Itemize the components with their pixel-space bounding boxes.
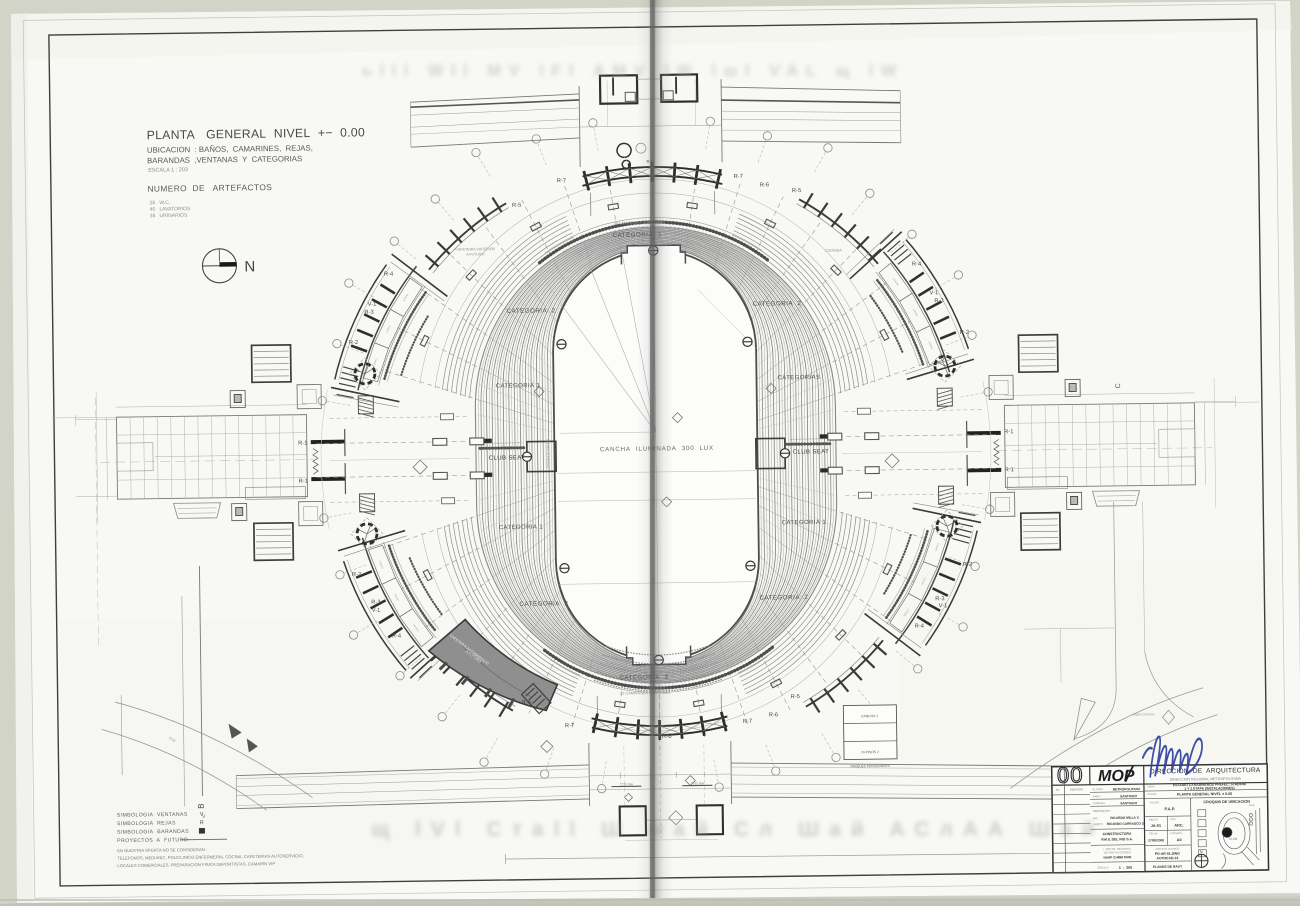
svg-text:CATEGORIA 2: CATEGORIA 2 xyxy=(753,300,802,308)
svg-text:2733 INA: 2733 INA xyxy=(620,782,634,786)
svg-text:PLANTA GENERAL NIVEL ± 0.00: PLANTA GENERAL NIVEL ± 0.00 xyxy=(1177,792,1232,797)
svg-text:CATEGORIA 1: CATEGORIA 1 xyxy=(782,520,827,527)
svg-text:MOP: MOP xyxy=(1098,768,1135,785)
svg-text:CLUB SEAT: CLUB SEAT xyxy=(793,449,830,455)
svg-text:CONSTRUCTORA: CONSTRUCTORA xyxy=(1103,832,1132,836)
svg-text:FORMATO: FORMATO xyxy=(1170,832,1182,835)
svg-text:R-5: R-5 xyxy=(792,188,801,194)
svg-text:DIRECCION DE ARQUITECTURA: DIRECCION DE ARQUITECTURA xyxy=(1150,767,1261,775)
svg-text:ARCHIVO TECNICO: ARCHIVO TECNICO xyxy=(1155,847,1179,851)
svg-text:CATEGORIA 2: CATEGORIA 2 xyxy=(519,600,568,608)
svg-text:CATEGORIA 1: CATEGORIA 1 xyxy=(499,525,544,532)
svg-text:OBRA: OBRA xyxy=(1147,784,1155,788)
svg-text:R-6: R-6 xyxy=(769,712,778,718)
svg-text:SIMBOLOGIA BARANDAS: SIMBOLOGIA BARANDAS xyxy=(117,829,189,836)
svg-text:AREA: AREA xyxy=(1093,794,1101,798)
svg-text:R-3: R-3 xyxy=(371,600,380,606)
svg-text:N: N xyxy=(244,258,255,275)
svg-text:CANCHA 1: CANCHA 1 xyxy=(861,714,878,718)
svg-text:R-7: R-7 xyxy=(734,174,743,180)
svg-text:26 W.C.: 26 W.C. xyxy=(150,200,171,206)
svg-text:COMUNA: COMUNA xyxy=(1093,801,1106,805)
svg-text:CATEGORIA 2: CATEGORIA 2 xyxy=(759,594,808,602)
svg-text:P.A.P.: P.A.P. xyxy=(1164,806,1175,811)
svg-text:SIMBOLOGIA VENTANAS: SIMBOLOGIA VENTANAS xyxy=(117,812,188,819)
svg-text:FECHA: FECHA xyxy=(1149,832,1158,835)
svg-text:CLUB SEAT: CLUB SEAT xyxy=(489,455,526,461)
svg-text:ESCALA: ESCALA xyxy=(1097,866,1108,870)
svg-text:PARQUES POSTERIORES: PARQUES POSTERIORES xyxy=(850,764,889,769)
svg-text:ARC.: ARC. xyxy=(1174,824,1183,828)
svg-text:R-5: R-5 xyxy=(791,694,800,700)
svg-text:V-1: V-1 xyxy=(939,603,948,609)
svg-text:CLUB: CLUB xyxy=(1229,837,1237,841)
svg-text:2733 INA: 2733 INA xyxy=(691,781,705,785)
svg-text:DIBUJO: DIBUJO xyxy=(1149,818,1158,821)
svg-text:36 URINARIOS: 36 URINARIOS xyxy=(150,213,188,220)
svg-text:R-3: R-3 xyxy=(935,596,944,602)
svg-text:METROPOLITANA: METROPOLITANA xyxy=(1113,787,1141,791)
svg-text:CISTERIA: CISTERIA xyxy=(825,249,842,253)
svg-text:R-2: R-2 xyxy=(352,572,361,578)
svg-text:27/05/2000: 27/05/2000 xyxy=(1148,838,1164,842)
svg-text:B: B xyxy=(197,803,206,808)
svg-text:PLANTA: PLANTA xyxy=(1092,787,1103,791)
svg-text:R-7: R-7 xyxy=(565,723,574,729)
svg-text:1 Y 2 ETAPA (INSTALACIONES): 1 Y 2 ETAPA (INSTALACIONES) xyxy=(1184,786,1234,791)
svg-text:R-5: R-5 xyxy=(512,203,521,209)
svg-text:R-1: R-1 xyxy=(1004,429,1013,435)
svg-text:R-1: R-1 xyxy=(298,441,307,447)
svg-text:R-5: R-5 xyxy=(522,700,531,706)
svg-text:A0: A0 xyxy=(1177,838,1182,842)
svg-text:RICARDO MILLA V.: RICARDO MILLA V. xyxy=(1110,816,1139,820)
svg-text:PLANTA GENERAL NIVEL +− 0: PLANTA GENERAL NIVEL +− 0.00 xyxy=(147,125,365,142)
svg-text:PROYECTOS A FUTURO: PROYECTOS A FUTURO xyxy=(117,837,188,844)
svg-text:PISTA DE SALER: PISTA DE SALER xyxy=(546,439,550,468)
svg-text:V-1: V-1 xyxy=(929,290,938,296)
svg-text:24 PISOS 2: 24 PISOS 2 xyxy=(861,750,879,754)
svg-text:R-4: R-4 xyxy=(912,261,922,267)
svg-text:R-4: R-4 xyxy=(392,633,402,639)
svg-text:No: No xyxy=(1056,788,1060,792)
svg-text:PROYECTO :: PROYECTO : xyxy=(1093,809,1112,813)
svg-text:RICARDO CARRASCO G.: RICARDO CARRASCO G. xyxy=(1107,822,1146,827)
svg-text:R-7: R-7 xyxy=(557,178,566,184)
svg-text:ьlll Wll MV lFl AMV lW lшl VAL: ьlll Wll MV lFl AMV lW lшl VAL щ lW xyxy=(362,62,904,80)
svg-text:A FUTURO: A FUTURO xyxy=(466,252,484,256)
svg-text:PLANOS DE BAUT: PLANOS DE BAUT xyxy=(1153,865,1182,869)
svg-text:C: C xyxy=(1115,383,1122,388)
svg-text:NASP CHMM PAIN: NASP CHMM PAIN xyxy=(1103,855,1132,859)
svg-text:R-6: R-6 xyxy=(760,182,769,188)
svg-text:V-1: V-1 xyxy=(368,302,377,308)
svg-text:R-3: R-3 xyxy=(934,298,943,304)
svg-text:R-2: R-2 xyxy=(349,340,358,346)
svg-text:RAUL DEL RIO S.A.: RAUL DEL RIO S.A. xyxy=(1101,837,1133,841)
svg-text:TIPO: TIPO xyxy=(1170,818,1176,821)
svg-text:00: 00 xyxy=(1057,762,1084,787)
svg-text:VALIDO: VALIDO xyxy=(1150,800,1159,804)
svg-text:R-4: R-4 xyxy=(384,271,394,277)
svg-text:V-1: V-1 xyxy=(372,608,381,614)
svg-text:CATEGORIA 1: CATEGORIA 1 xyxy=(496,383,541,390)
svg-text:CATEGORIA 2: CATEGORIA 2 xyxy=(507,307,556,315)
svg-text:LINEA OFICIAL: LINEA OFICIAL xyxy=(1132,712,1155,716)
svg-text:R-4: R-4 xyxy=(915,623,925,629)
svg-text:40 LAVATORIOS: 40 LAVATORIOS xyxy=(150,206,191,213)
svg-text:PLANO: PLANO xyxy=(1148,792,1157,796)
svg-text:R-3: R-3 xyxy=(364,310,373,316)
svg-text:ESCALA 1 : 203: ESCALA 1 : 203 xyxy=(148,167,188,174)
svg-text:R: R xyxy=(200,820,204,826)
svg-text:DE VENTILACIONES: DE VENTILACIONES xyxy=(1104,850,1131,854)
svg-text:JA-01: JA-01 xyxy=(1151,824,1161,828)
svg-text:REVISION: REVISION xyxy=(1070,787,1083,791)
svg-text:AUTOCAD-14: AUTOCAD-14 xyxy=(1156,856,1178,860)
svg-text:R-7: R-7 xyxy=(743,719,752,725)
svg-text:1 : 200: 1 : 200 xyxy=(1119,866,1132,870)
svg-text:NUMERO DE ARTEFACTOS: NUMERO DE ARTEFACTOS xyxy=(147,182,272,194)
svg-text:CAFETERIA SUPERIOR: CAFETERIA SUPERIOR xyxy=(455,247,495,252)
svg-text:щ lVl Стаll Ш май Сл Шай АСлАА: щ lVl Стаll Ш май Сл Шай АСлАА Шай xyxy=(371,818,1104,841)
svg-text:V: V xyxy=(200,812,204,818)
svg-text:VIAS: VIAS xyxy=(1249,803,1255,807)
svg-text:CROQUIS DE UBICACION: CROQUIS DE UBICACION xyxy=(1203,800,1250,805)
svg-text:R-1: R-1 xyxy=(299,479,308,485)
svg-text:SIMBOLOGIA REJAS: SIMBOLOGIA REJAS xyxy=(117,820,176,827)
svg-text:SANTIAGO: SANTIAGO xyxy=(1120,794,1137,798)
svg-text:SANTIAGO: SANTIAGO xyxy=(1120,801,1137,805)
svg-text:CATEGORIAS: CATEGORIAS xyxy=(778,375,821,382)
